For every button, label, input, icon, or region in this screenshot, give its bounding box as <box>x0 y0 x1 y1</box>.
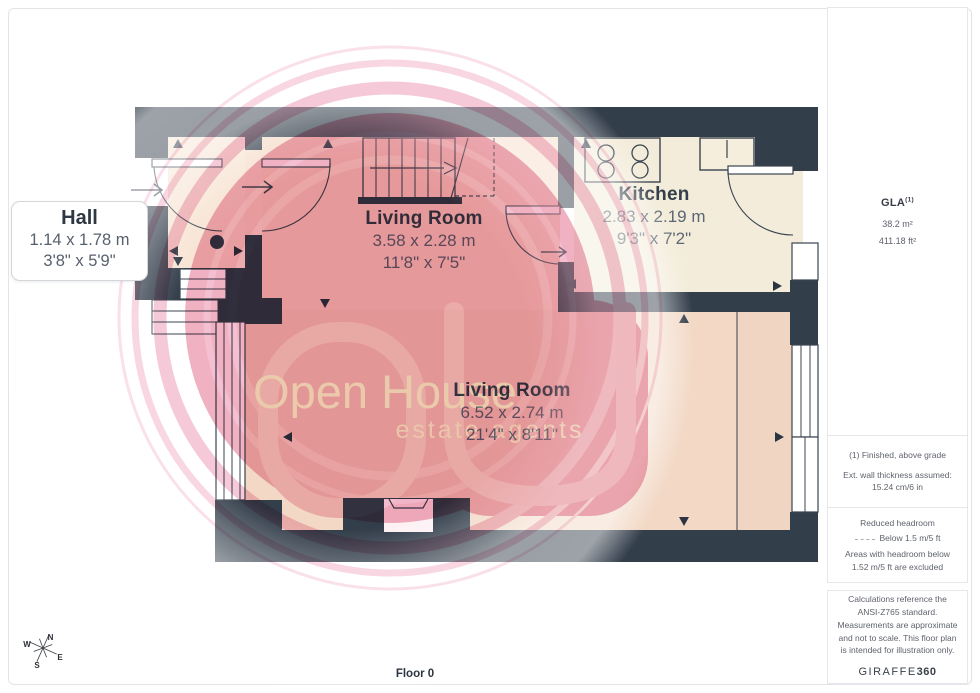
floor-label: Floor 0 <box>355 668 475 680</box>
gla-label: GLA(1) <box>881 195 914 212</box>
wall-bottom <box>215 530 818 562</box>
wall-top <box>135 107 818 137</box>
wall-sw-block <box>215 500 282 562</box>
gla-area-imperial: 411.18 ft² <box>879 235 916 249</box>
hall-callout: Hall 1.14 x 1.78 m 3'8" x 5'9" <box>11 201 148 281</box>
disclaimer-card: Calculations reference the ANSI-Z765 sta… <box>827 590 968 684</box>
dashed-line-icon <box>855 539 875 540</box>
living-room-2-label: Living Room 6.52 x 2.74 m 21'4" x 8'11" <box>453 380 570 447</box>
gla-card: GLA(1) 38.2 m² 411.18 ft² <box>827 7 968 436</box>
compass-e: E <box>57 653 63 662</box>
brand-suffix: 360 <box>917 666 937 678</box>
room-dim-imperial: 9'3" x 7'2" <box>602 228 705 250</box>
survey-point-dot <box>210 235 224 249</box>
room-dim-metric: 3.58 x 2.28 m <box>365 230 482 252</box>
compass-icon: N E S W <box>23 628 63 670</box>
kitchen-label: Kitchen 2.83 x 2.19 m 9'3" x 7'2" <box>602 184 705 251</box>
east-window-mid <box>792 345 818 437</box>
room-dim-imperial: 3'8" x 5'9" <box>12 251 147 272</box>
hall-doorway-floor <box>245 150 262 235</box>
wall-note-line1: (1) Finished, above grade <box>849 449 946 462</box>
stove-icon <box>585 138 660 182</box>
wall-note-card: (1) Finished, above grade Ext. wall thic… <box>827 435 968 508</box>
wall-note-line2: Ext. wall thickness assumed: 15.24 cm/6 … <box>840 469 955 495</box>
wall-hall-right-stub-bottom <box>245 235 262 300</box>
room-dim-metric: 2.83 x 2.19 m <box>602 206 705 228</box>
wall-left-upper <box>135 137 168 158</box>
floorplan-page: N E S W Living Room 3.58 x 2.28 m 11'8" … <box>0 0 980 693</box>
headroom-note: Areas with headroom below 1.52 m/5 ft ar… <box>836 548 959 574</box>
compass-w: W <box>23 640 31 649</box>
gla-text: GLA <box>881 197 905 209</box>
disclaimer-text: Calculations reference the ANSI-Z765 sta… <box>837 593 958 657</box>
headroom-card: Reduced headroom Below 1.5 m/5 ft Areas … <box>827 507 968 583</box>
compass-n: N <box>48 633 54 642</box>
wall-sw-hall-block <box>215 298 282 324</box>
room-dim-imperial: 11'8" x 7'5" <box>365 252 482 274</box>
east-window-upper <box>792 243 818 280</box>
fireplace <box>384 499 433 532</box>
living-room-1-label: Living Room 3.58 x 2.28 m 11'8" x 7'5" <box>365 208 482 275</box>
gla-area-metric: 38.2 m² <box>882 218 913 232</box>
headroom-legend-row: Below 1.5 m/5 ft <box>855 532 941 545</box>
room-name: Kitchen <box>602 184 705 206</box>
sink-icon <box>700 138 754 170</box>
room-name: Hall <box>12 207 147 230</box>
sidebar: GLA(1) 38.2 m² 411.18 ft² (1) Finished, … <box>827 8 968 684</box>
wall-ne-block <box>755 107 818 171</box>
gla-superscript: (1) <box>905 196 914 203</box>
entrance-steps <box>152 300 218 334</box>
room-dim-metric: 6.52 x 2.74 m <box>453 402 570 424</box>
wall-hall-right-stub-top <box>245 137 262 150</box>
room-name: Living Room <box>453 380 570 402</box>
hall-window <box>180 269 226 299</box>
wall-lr1-kitchen-top <box>558 137 574 208</box>
wall-east-mid <box>790 280 818 345</box>
headroom-title: Reduced headroom <box>860 517 935 530</box>
giraffe360-logo: GIRAFFE360 <box>858 664 936 681</box>
room-name: Living Room <box>365 208 482 230</box>
east-window-lower <box>792 437 818 512</box>
wall-kitchen-bottom <box>558 292 803 312</box>
headroom-legend: Below 1.5 m/5 ft <box>880 533 941 543</box>
room-dim-metric: 1.14 x 1.78 m <box>12 230 147 251</box>
living-room-2-left-window <box>216 322 245 500</box>
brand-main: GIRAFFE <box>858 666 916 678</box>
stair-rail <box>358 197 462 204</box>
room-dim-imperial: 21'4" x 8'11" <box>453 424 570 446</box>
compass-s: S <box>34 661 40 670</box>
